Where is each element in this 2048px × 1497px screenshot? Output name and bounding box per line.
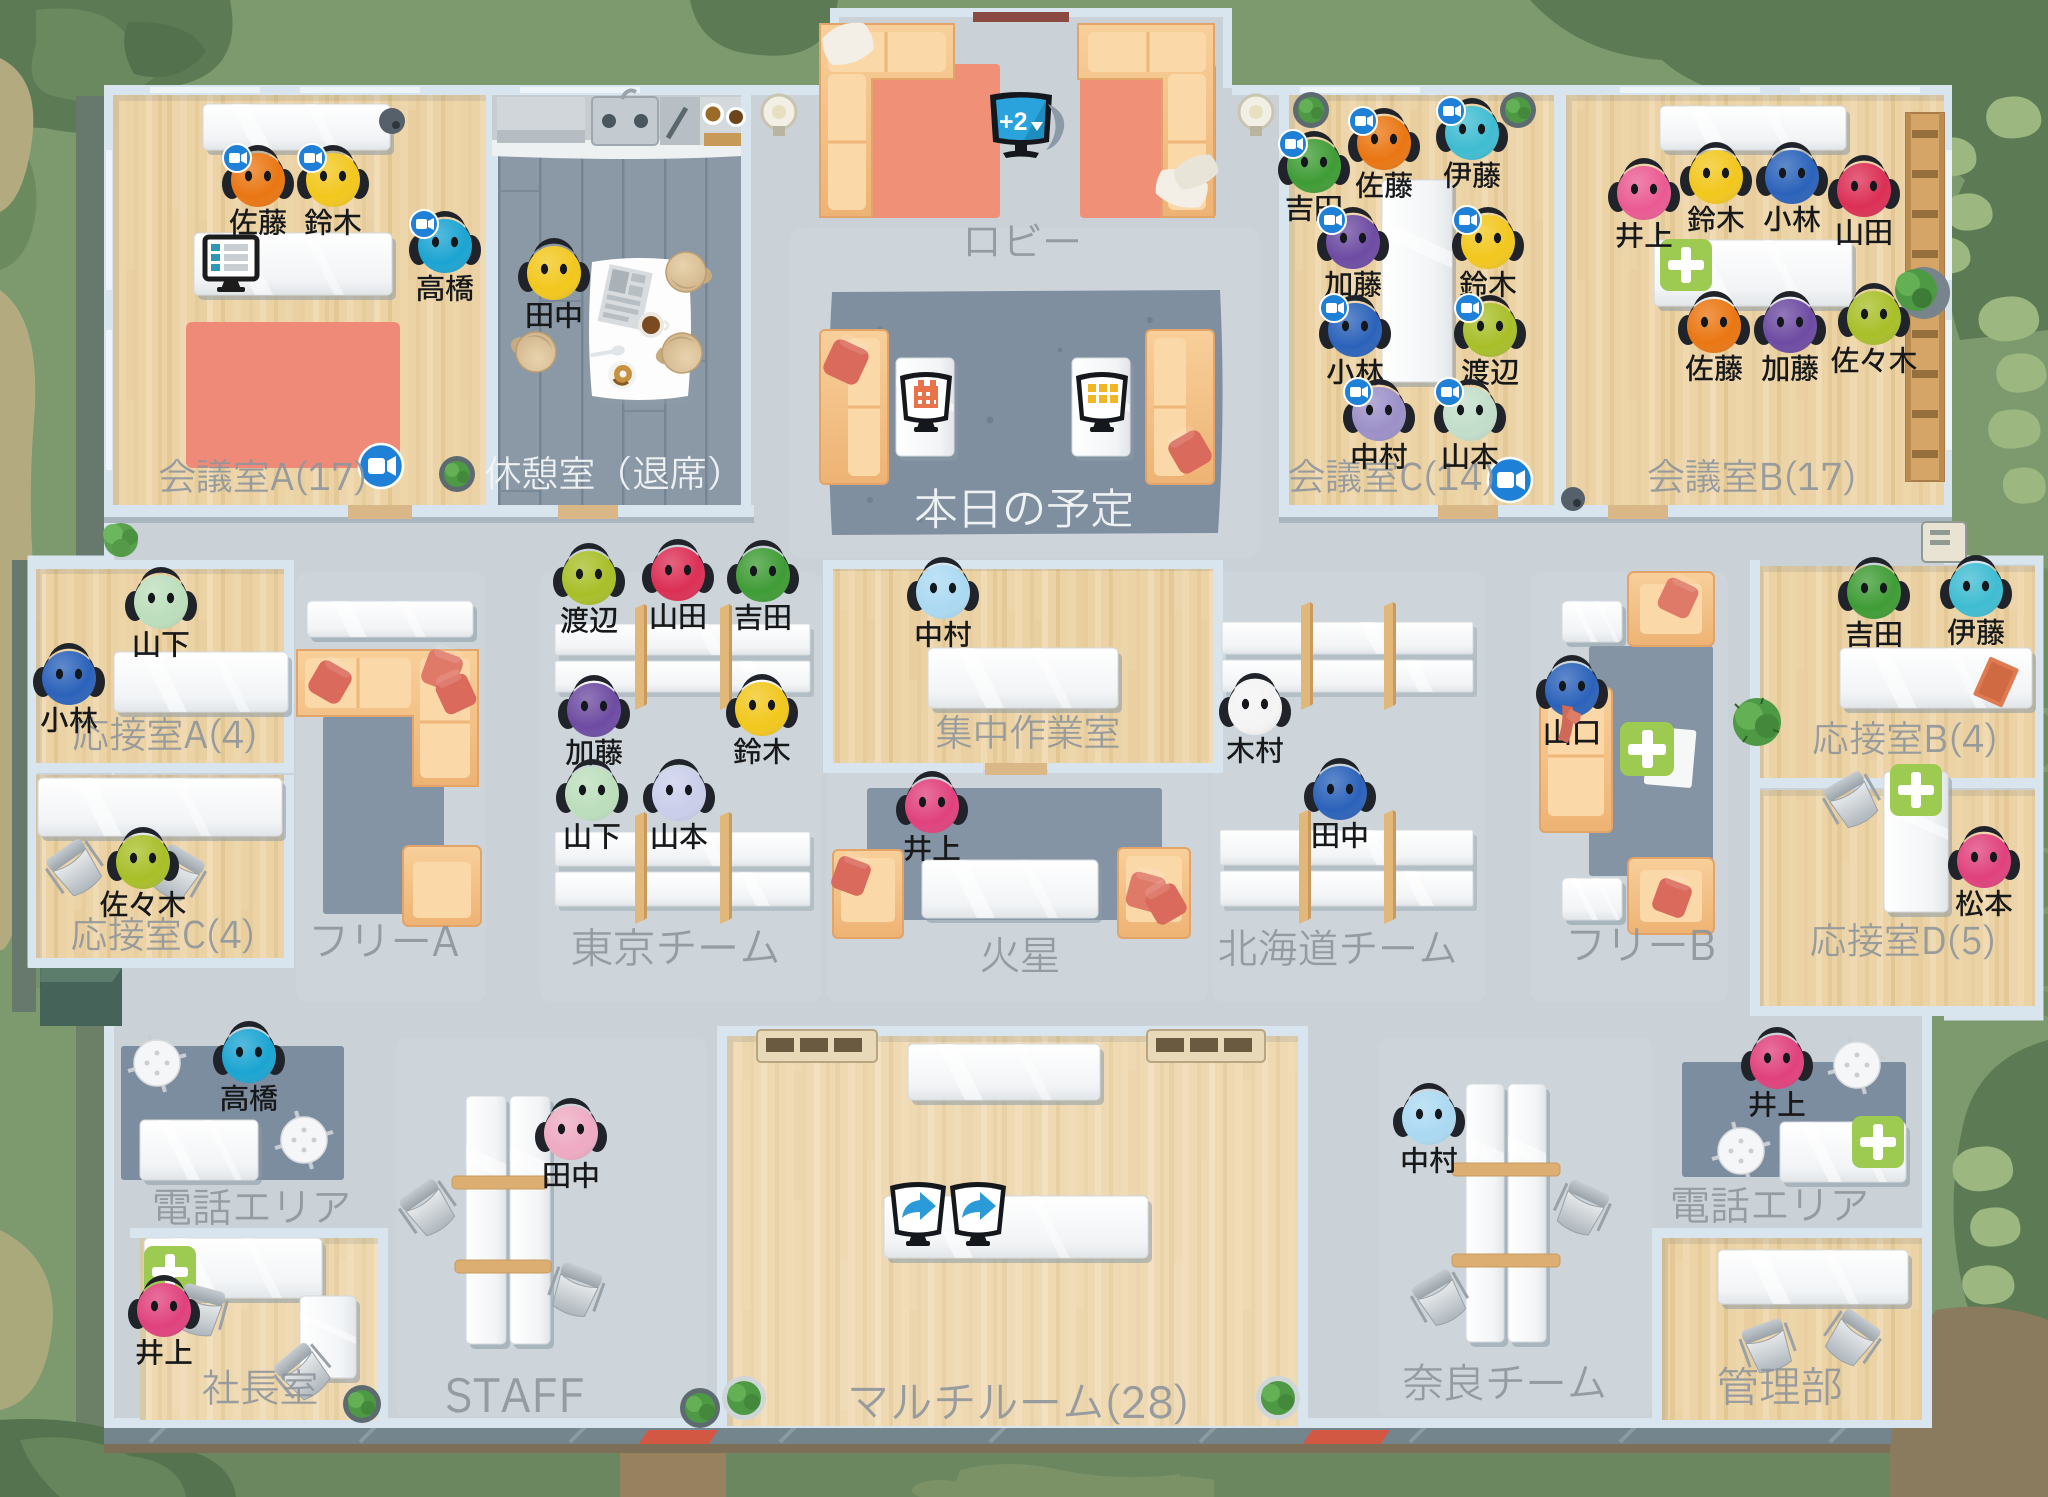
svg-text:+2: +2 xyxy=(999,108,1028,136)
